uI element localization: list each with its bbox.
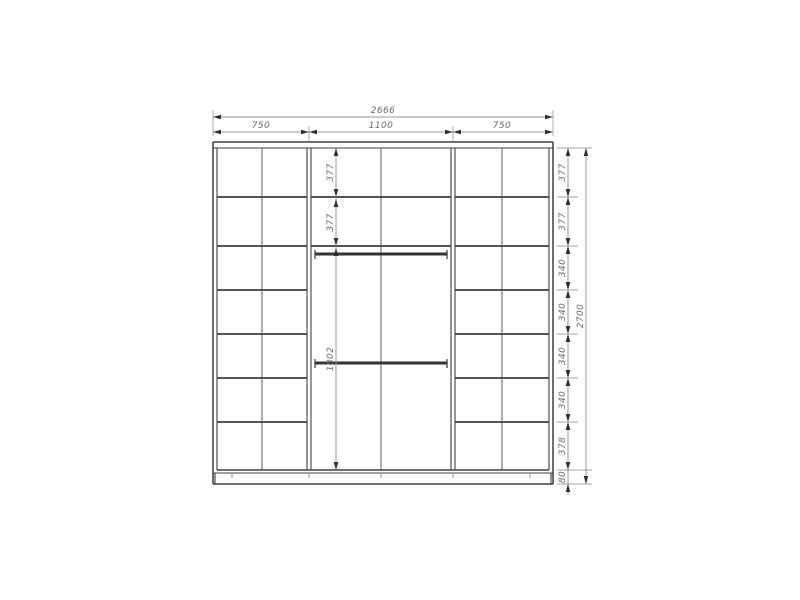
dim-label-plinth-height: 80	[558, 471, 568, 483]
arrowhead	[213, 115, 221, 120]
arrowhead	[334, 462, 339, 470]
right-section-shelves	[455, 148, 549, 470]
arrowhead	[545, 130, 553, 135]
dim-label-hanging-height: 1802	[326, 347, 336, 372]
arrowhead	[334, 238, 339, 246]
dim-label-total-height: 2700	[576, 304, 586, 329]
arrowhead	[566, 290, 571, 298]
wardrobe-drawing: 2666 750 1100 750	[0, 0, 800, 600]
arrowhead	[584, 148, 589, 156]
arrowhead	[213, 130, 221, 135]
dim-label-shelf-height: 377	[326, 213, 336, 231]
arrowhead	[566, 370, 571, 378]
arrowhead	[309, 130, 317, 135]
dim-label-row-height: 377	[558, 163, 568, 181]
dim-label-shelf-height: 377	[326, 163, 336, 181]
arrowhead	[566, 422, 571, 430]
arrowhead	[566, 246, 571, 254]
right-dimension-lines: 377 377 340 340 340 340 378 80 2700	[557, 148, 592, 495]
arrowhead	[334, 189, 339, 197]
dim-label-row-height: 377	[558, 212, 568, 230]
dim-label-row-height: 378	[558, 437, 568, 455]
dim-label-row-height: 340	[558, 259, 568, 277]
arrowhead	[301, 130, 309, 135]
arrowhead	[445, 130, 453, 135]
arrowhead	[334, 248, 339, 256]
arrowhead	[566, 326, 571, 334]
arrowhead	[566, 148, 571, 156]
arrowhead	[566, 484, 571, 492]
dim-label-row-height: 340	[558, 303, 568, 321]
left-section-shelves	[217, 148, 307, 470]
arrowhead	[566, 238, 571, 246]
dim-label-total-width: 2666	[371, 106, 396, 116]
arrowhead	[584, 476, 589, 484]
arrowhead	[566, 378, 571, 386]
arrowhead	[566, 462, 571, 470]
arrowhead	[334, 148, 339, 156]
arrowhead	[334, 199, 339, 207]
dim-label-row-height: 340	[558, 391, 568, 409]
dim-label-section-width: 750	[252, 121, 270, 131]
dim-label-section-width: 1100	[369, 121, 394, 131]
arrowhead	[566, 334, 571, 342]
arrowhead	[566, 189, 571, 197]
top-dimension-lines: 2666 750 1100 750	[213, 106, 553, 141]
middle-section-shelves	[311, 148, 451, 470]
drawing-canvas: 2666 750 1100 750	[0, 0, 800, 600]
arrowhead	[453, 130, 461, 135]
dim-label-section-width: 750	[493, 121, 511, 131]
arrowhead	[545, 115, 553, 120]
arrowhead	[566, 282, 571, 290]
dim-label-row-height: 340	[558, 347, 568, 365]
arrowhead	[566, 414, 571, 422]
arrowhead	[566, 197, 571, 205]
